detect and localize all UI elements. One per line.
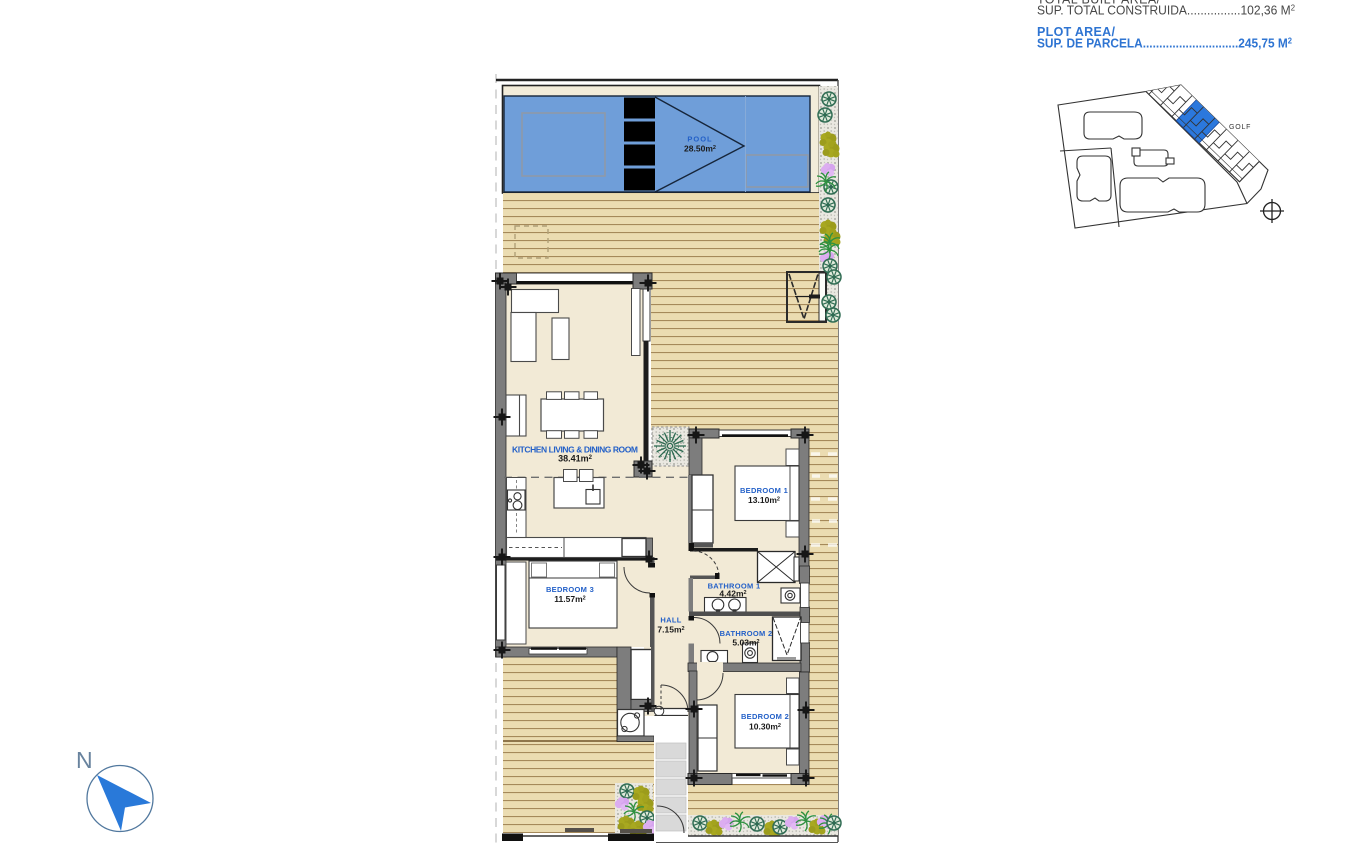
svg-text:GOLF: GOLF bbox=[1229, 124, 1251, 131]
svg-text:SUP. DE PARCELA...............: SUP. DE PARCELA.........................… bbox=[1037, 37, 1293, 51]
svg-text:11.57m2: 11.57m2 bbox=[554, 594, 585, 604]
svg-text:7.15m2: 7.15m2 bbox=[657, 625, 684, 635]
svg-text:BEDROOM 3: BEDROOM 3 bbox=[546, 585, 594, 594]
svg-text:POOL: POOL bbox=[687, 135, 712, 144]
svg-text:N: N bbox=[76, 747, 93, 773]
svg-text:BEDROOM 2: BEDROOM 2 bbox=[741, 712, 789, 721]
svg-text:13.10m2: 13.10m2 bbox=[748, 495, 780, 505]
svg-text:SUP. TOTAL CONSTRUIDA.........: SUP. TOTAL CONSTRUIDA................102… bbox=[1037, 4, 1296, 18]
svg-text:HALL: HALL bbox=[660, 616, 681, 625]
svg-text:4.42m2: 4.42m2 bbox=[719, 589, 746, 599]
svg-text:38.41m2: 38.41m2 bbox=[558, 454, 593, 464]
svg-text:28.50m2: 28.50m2 bbox=[684, 144, 716, 154]
svg-text:5.03m2: 5.03m2 bbox=[732, 638, 759, 648]
svg-text:10.30m2: 10.30m2 bbox=[749, 722, 781, 732]
svg-text:BEDROOM 1: BEDROOM 1 bbox=[740, 486, 788, 495]
